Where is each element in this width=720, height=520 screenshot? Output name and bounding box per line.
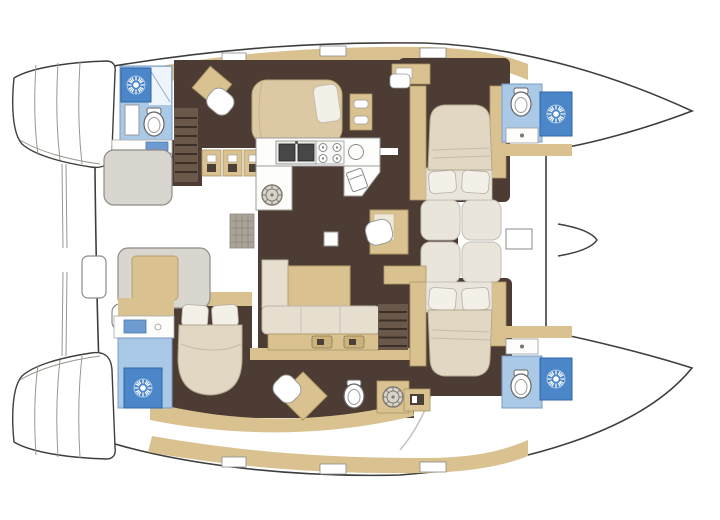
stove-icon xyxy=(316,141,344,164)
port-aft-head xyxy=(112,66,172,154)
island-bed xyxy=(178,325,242,395)
hull-locker xyxy=(404,389,430,411)
starboard-companionway-steps xyxy=(378,304,408,350)
port-transom-steps xyxy=(13,61,116,167)
cockpit-grate-mat xyxy=(230,214,254,248)
shower-sun-icon xyxy=(547,370,565,388)
cockpit-lounge-seat xyxy=(104,150,172,205)
bed-pillow xyxy=(428,170,456,194)
nightstand-item xyxy=(354,100,368,108)
shower-sun-icon xyxy=(134,379,152,397)
starboard-aft-head xyxy=(114,298,174,408)
double-sink-icon xyxy=(276,141,316,164)
head-door xyxy=(125,105,139,135)
chaise-cushion xyxy=(288,266,350,306)
bowsprit-bracket xyxy=(558,224,597,256)
sofa-base-locker xyxy=(344,336,364,348)
deck-hatch-icon xyxy=(383,387,403,407)
bed-pillow xyxy=(211,304,238,328)
bed-pillow xyxy=(428,287,456,311)
toilet-icon xyxy=(511,370,531,398)
sofa-arm xyxy=(262,260,288,308)
floor-plan-svg xyxy=(0,0,720,520)
wardrobe xyxy=(384,266,426,284)
joinery-strip xyxy=(502,326,572,338)
island-bed xyxy=(428,105,492,170)
davit-lines xyxy=(62,164,67,356)
port-forward-head xyxy=(502,84,572,156)
nightstand xyxy=(350,94,372,130)
sofa-base-locker xyxy=(312,336,332,348)
mast-step xyxy=(324,232,338,246)
catamaran-floor-plan xyxy=(0,0,720,520)
island-bed xyxy=(428,310,492,376)
joinery-strip xyxy=(118,298,174,316)
wash-basin xyxy=(124,320,146,333)
cockpit-side-table xyxy=(82,256,106,298)
joinery-strip xyxy=(502,144,572,156)
bed-pillow xyxy=(313,84,342,124)
bed-pillow xyxy=(461,170,489,194)
port-cabin-lockers xyxy=(202,150,263,176)
bed-pillow xyxy=(181,304,208,328)
bed-pillow xyxy=(461,287,489,311)
shower-sun-icon xyxy=(547,105,565,123)
nav-station xyxy=(363,210,408,254)
port-companionway-steps xyxy=(174,108,198,182)
toilet-icon xyxy=(144,108,164,136)
forward-beam-locker xyxy=(506,229,532,249)
deck-hatch-icon xyxy=(262,185,282,205)
toilet-icon xyxy=(344,380,364,408)
shower-sun-icon xyxy=(127,76,145,94)
starboard-transom-steps xyxy=(13,353,116,459)
bed-frame xyxy=(410,282,426,366)
nightstand-item xyxy=(354,116,368,124)
toilet-icon xyxy=(511,88,531,116)
bench-cushion xyxy=(132,256,178,300)
sofa-seat xyxy=(262,306,380,334)
nightstand xyxy=(390,74,410,88)
bed-frame xyxy=(410,86,426,200)
round-sink-icon xyxy=(349,145,364,160)
